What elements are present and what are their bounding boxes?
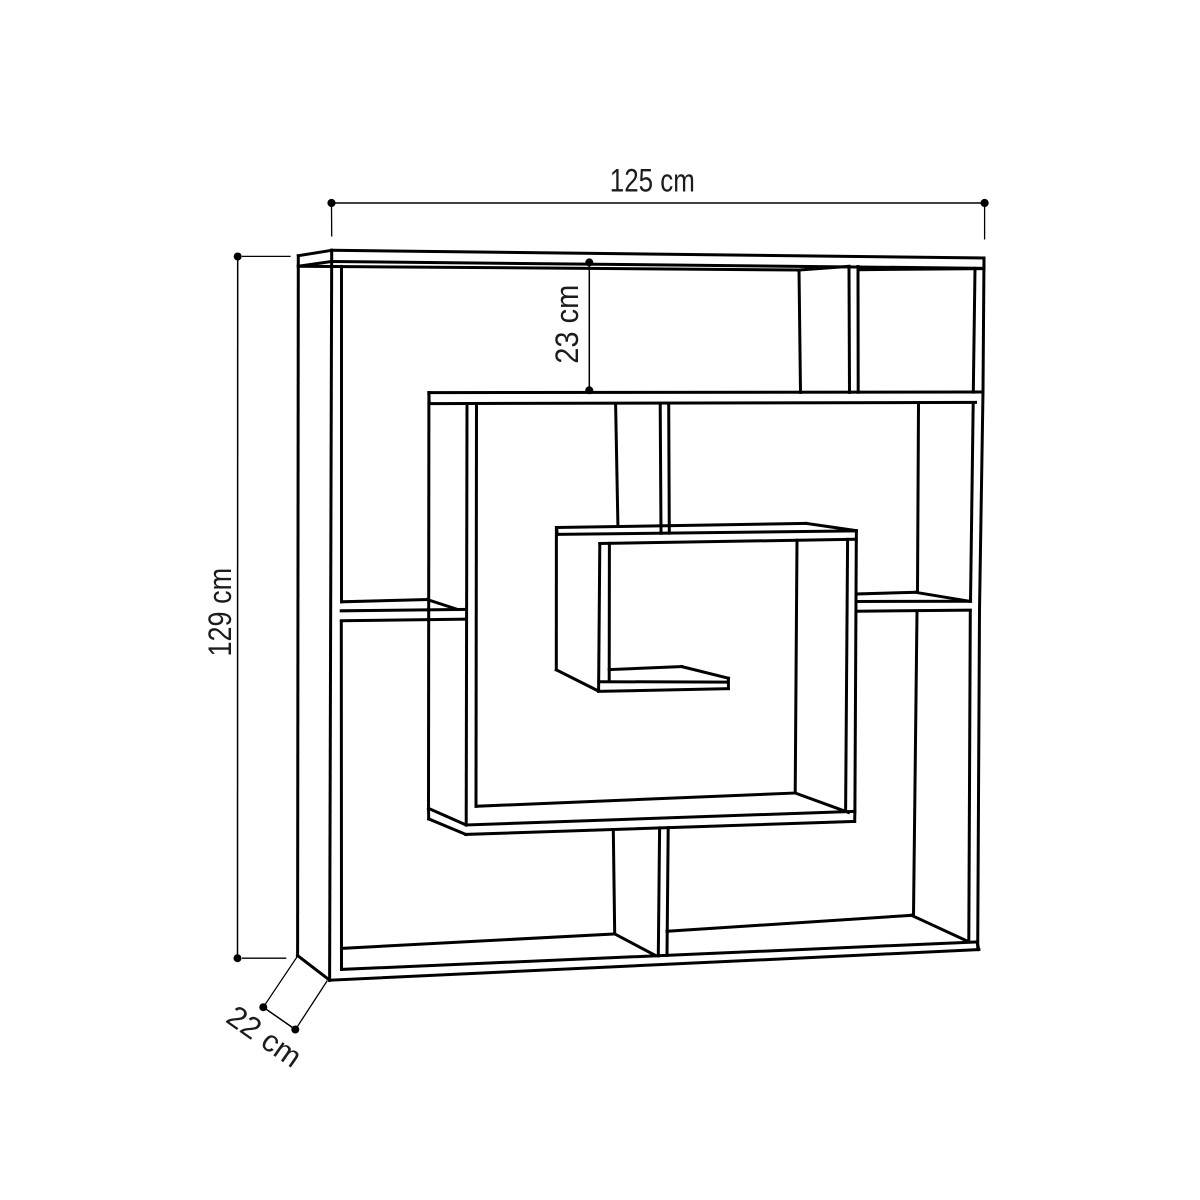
svg-text:129 cm: 129 cm xyxy=(202,568,238,657)
svg-text:23 cm: 23 cm xyxy=(549,285,585,364)
svg-text:125 cm: 125 cm xyxy=(610,163,695,199)
